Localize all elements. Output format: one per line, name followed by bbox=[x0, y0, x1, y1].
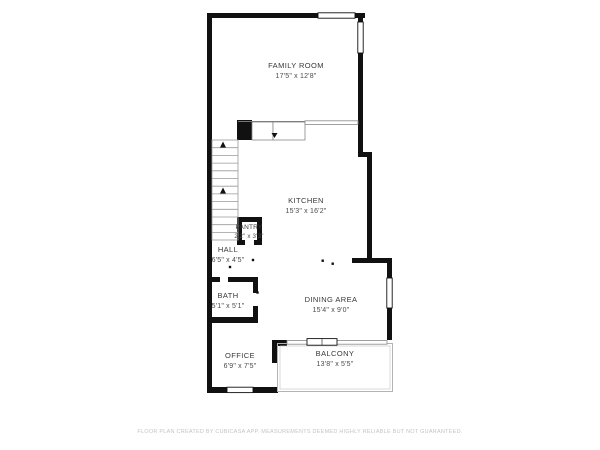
wall-left bbox=[207, 13, 212, 393]
window-family-top bbox=[318, 13, 355, 18]
kitchen-counter bbox=[238, 121, 358, 140]
balcony-railing bbox=[278, 339, 393, 392]
disclaimer-text: FLOOR PLAN CREATED BY CUBICASA APP. MEAS… bbox=[0, 429, 600, 435]
window-office-bottom bbox=[227, 387, 253, 392]
balcony-railing-inner bbox=[280, 346, 390, 389]
floor-plan-canvas: FAMILY ROOM 17'5" x 12'8" KITCHEN 15'3" … bbox=[0, 0, 600, 450]
wall-dining-top bbox=[352, 258, 392, 263]
floor-plan-drawing bbox=[0, 0, 600, 450]
stair-arrow-up-icon bbox=[220, 142, 226, 148]
balcony-railing-outer bbox=[278, 344, 393, 392]
wall-bath-bottom bbox=[207, 317, 258, 323]
stair-direction-arrows bbox=[220, 142, 226, 194]
kitchen-fixture bbox=[273, 122, 305, 140]
walls bbox=[207, 13, 392, 393]
wall-block-kitchen bbox=[237, 120, 252, 140]
wall-pantry-bottom-left bbox=[237, 240, 245, 245]
wall-bath-right-upper bbox=[253, 277, 258, 293]
stair-arrow-up-icon bbox=[220, 188, 226, 194]
wall-bath-top-left bbox=[207, 277, 220, 282]
wall-office-bottom-left bbox=[207, 387, 227, 393]
window-dining-right bbox=[387, 278, 392, 308]
wall-right-dining-lower bbox=[387, 308, 392, 340]
staircase bbox=[212, 140, 238, 240]
kitchen-fixture bbox=[252, 122, 273, 140]
wall-right-dining-upper bbox=[387, 263, 392, 278]
kitchen-counter-edge bbox=[305, 121, 358, 125]
window-family-right bbox=[358, 22, 363, 53]
wall-pantry-bottom-right bbox=[254, 240, 262, 245]
door-markers bbox=[208, 14, 362, 294]
wall-right-kitchen bbox=[367, 152, 372, 263]
wall-office-bottom-right bbox=[253, 387, 278, 393]
